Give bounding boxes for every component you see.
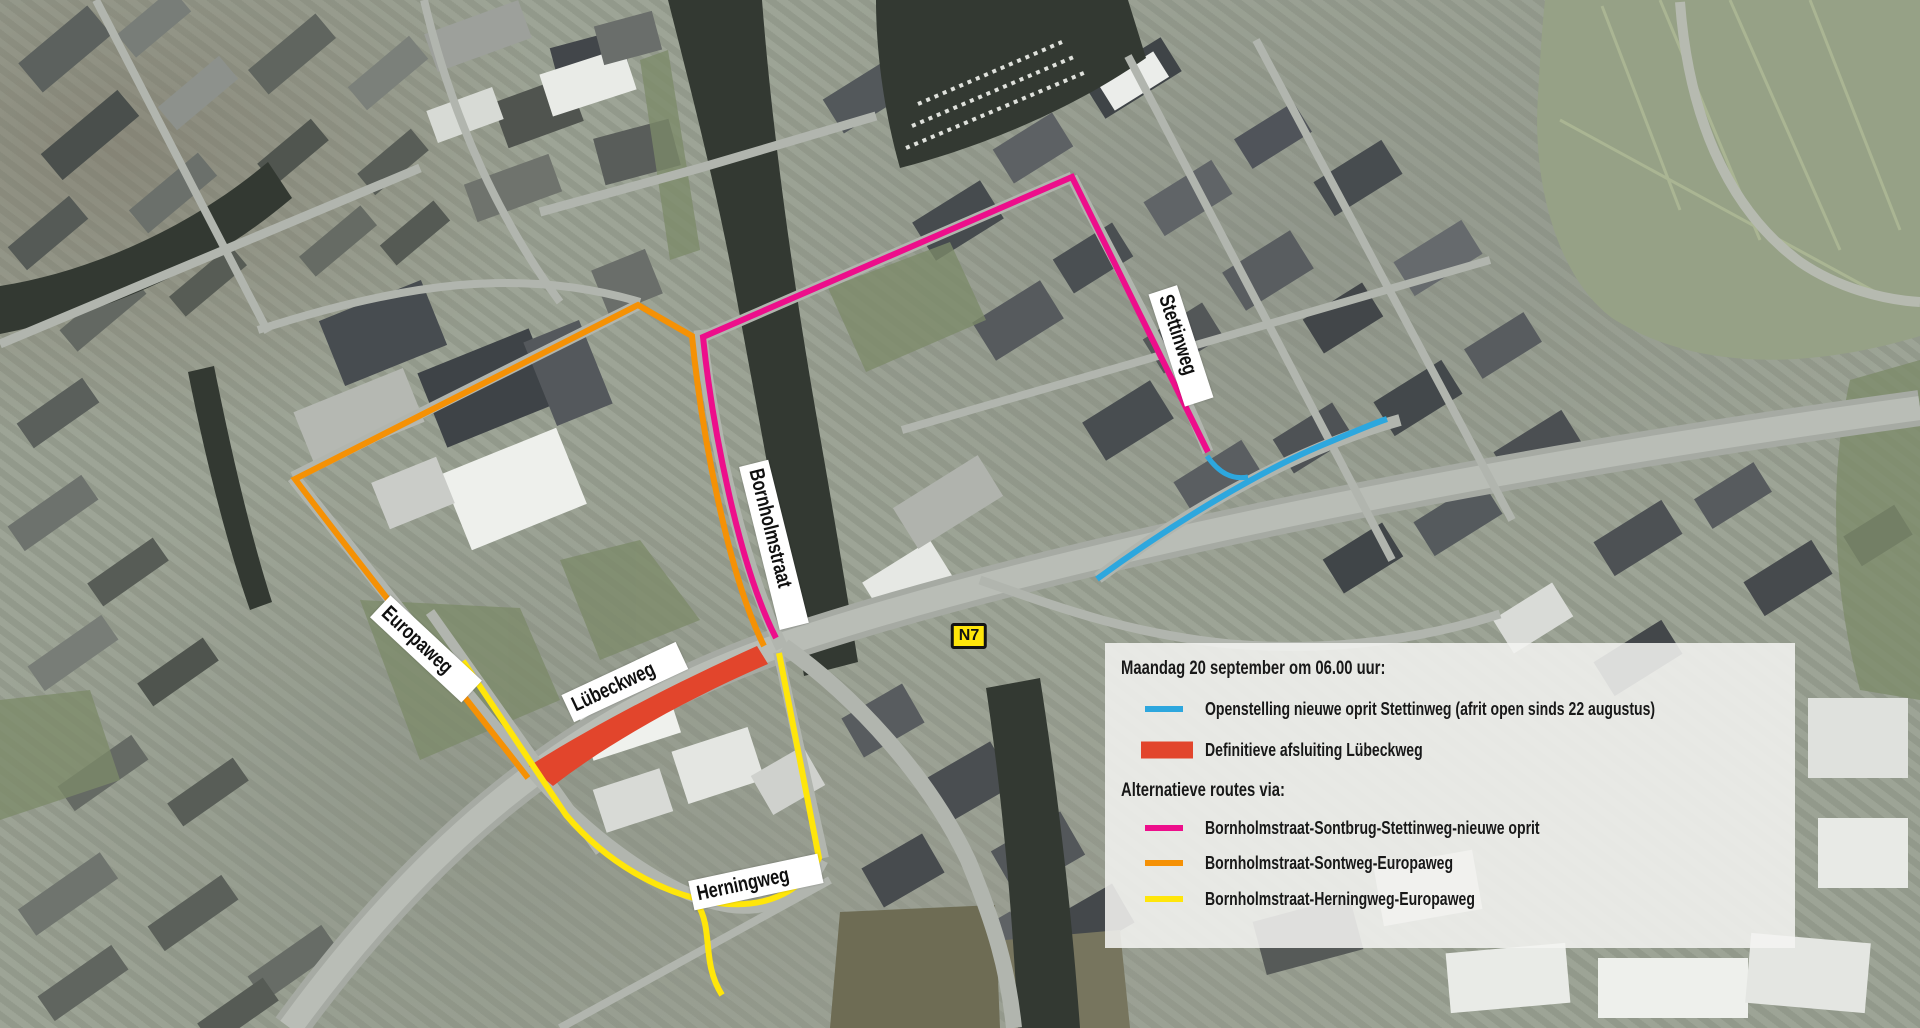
legend-item-label: Definitieve afsluiting Lübeckweg — [1205, 741, 1423, 759]
legend-item-yellow: Bornholmstraat-Herningweg-Europaweg — [1105, 885, 1795, 913]
legend-item-red: Definitieve afsluiting Lübeckweg — [1105, 736, 1795, 764]
legend-item-label: Bornholmstraat-Sontweg-Europaweg — [1205, 854, 1453, 872]
legend-item-orange: Bornholmstraat-Sontweg-Europaweg — [1105, 849, 1795, 877]
legend-panel: Maandag 20 september om 06.00 uur: Opens… — [1105, 643, 1795, 948]
legend-item-label: Openstelling nieuwe oprit Stettinweg (af… — [1205, 700, 1655, 718]
legend-item-blue: Openstelling nieuwe oprit Stettinweg (af… — [1105, 695, 1795, 723]
legend-item-label: Bornholmstraat-Sontbrug-Stettinweg-nieuw… — [1205, 819, 1540, 837]
legend-section1-title: Maandag 20 september om 06.00 uur: — [1121, 659, 1460, 680]
legend-item-label: Bornholmstraat-Herningweg-Europaweg — [1205, 890, 1475, 908]
yellow-line-swatch — [1145, 896, 1183, 902]
blue-line-swatch — [1145, 706, 1183, 712]
route-yellow-tail — [697, 903, 722, 995]
traffic-map: Stettinweg Bornholmstraat Europaweg Lübe… — [0, 0, 1920, 1028]
road-badge-n7: N7 — [951, 623, 987, 649]
orange-line-swatch — [1145, 860, 1183, 866]
route-orange-line — [295, 305, 764, 778]
legend-item-magenta: Bornholmstraat-Sontbrug-Stettinweg-nieuw… — [1105, 814, 1795, 842]
red-block-swatch — [1141, 742, 1193, 759]
route-blue-tail — [1207, 456, 1248, 478]
magenta-line-swatch — [1145, 825, 1183, 831]
route-blue-line — [1097, 419, 1387, 579]
legend-section2-title: Alternatieve routes via: — [1121, 781, 1331, 802]
